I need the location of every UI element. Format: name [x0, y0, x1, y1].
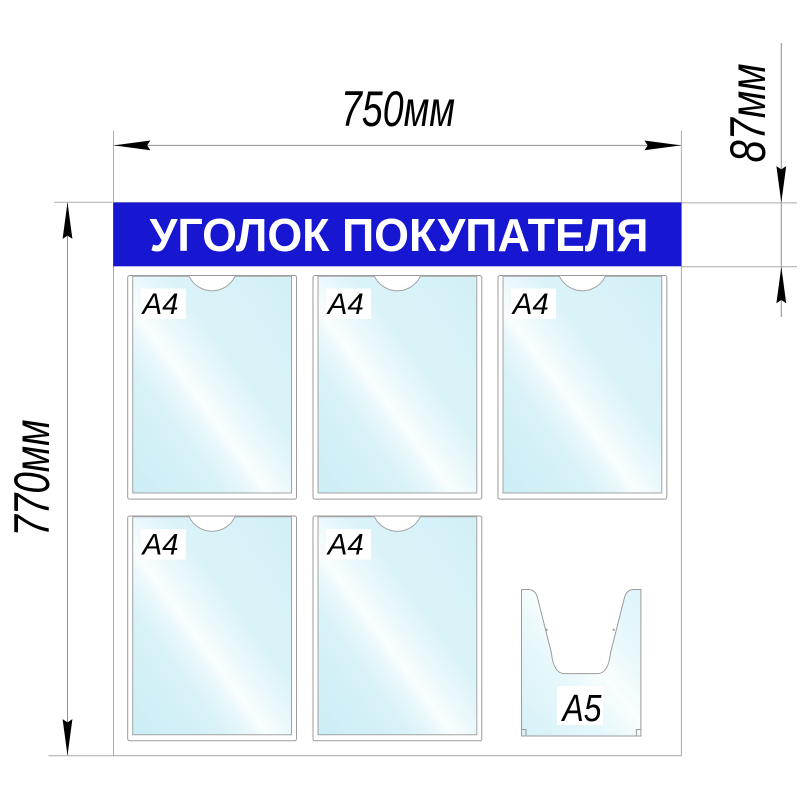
svg-text:A4: A4 [141, 288, 179, 321]
svg-text:750мм: 750мм [341, 81, 455, 137]
svg-text:87мм: 87мм [720, 64, 776, 163]
svg-text:770мм: 770мм [4, 420, 60, 537]
svg-text:A4: A4 [511, 288, 549, 321]
svg-text:УГОЛОК ПОКУПАТЕЛЯ: УГОЛОК ПОКУПАТЕЛЯ [150, 209, 649, 261]
svg-text:A4: A4 [326, 288, 364, 321]
svg-text:A4: A4 [141, 529, 179, 562]
svg-text:A5: A5 [561, 688, 602, 730]
svg-text:A4: A4 [326, 529, 364, 562]
